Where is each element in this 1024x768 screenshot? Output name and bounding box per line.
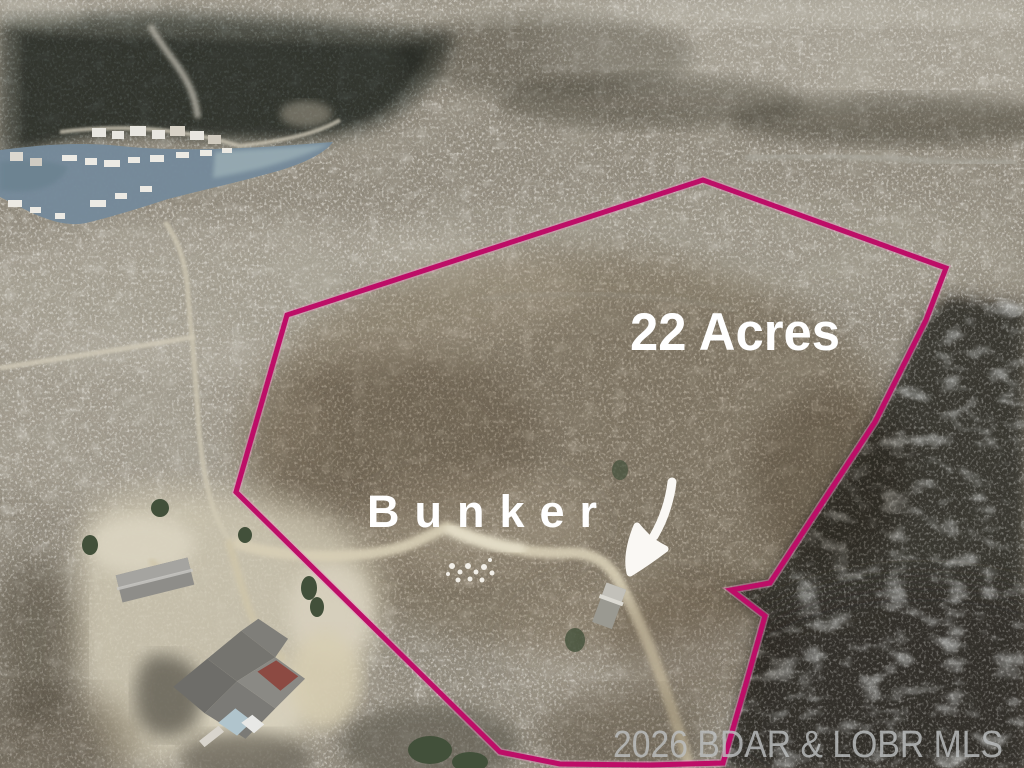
svg-text:Bunker: Bunker [367, 486, 612, 537]
svg-text:22 Acres: 22 Acres [630, 303, 840, 362]
svg-text:2026 BDAR & LOBR MLS: 2026 BDAR & LOBR MLS [613, 724, 1003, 766]
